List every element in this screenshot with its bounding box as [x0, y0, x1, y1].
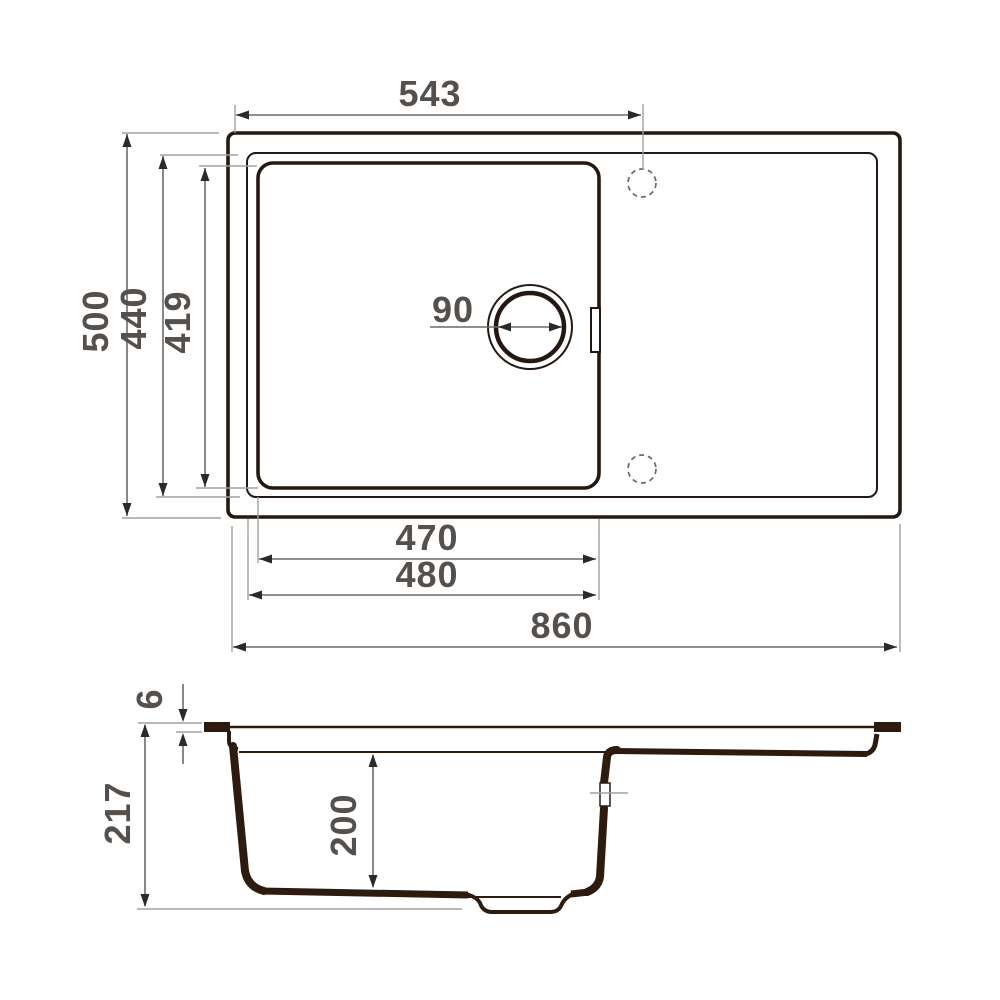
arrowhead-down [123, 503, 132, 516]
arrowhead-left [233, 643, 246, 652]
dim-label-860: 860 [530, 605, 593, 646]
arrowhead-left [236, 111, 249, 120]
arrowhead-up [141, 724, 150, 737]
overflow-slot-plan [591, 308, 600, 352]
section-bowl-bottom [262, 891, 468, 895]
arrowhead-down [141, 894, 150, 907]
arrowhead-right [628, 111, 641, 120]
dim-label-470: 470 [395, 517, 458, 558]
faucet-hole-top [628, 169, 656, 197]
section-overflow-hole [600, 783, 610, 806]
technical-drawing-canvas: 543 500 440 419 90 [0, 0, 1000, 1000]
arrowhead-left [498, 323, 511, 332]
section-bowl-wall-right-upper [604, 750, 617, 783]
dim-rim-thickness: 6 [129, 684, 202, 764]
sink-dimensions-diagram: 543 500 440 419 90 [0, 0, 1000, 1000]
arrowhead-right [884, 643, 897, 652]
top-view [228, 133, 900, 517]
dim-overall-width: 860 [232, 524, 900, 652]
dim-label-6: 6 [129, 688, 170, 709]
section-right-rim-edge [866, 734, 877, 754]
dim-label-90: 90 [432, 289, 474, 330]
bowl-outline [258, 163, 599, 488]
arrowhead-right [583, 555, 596, 564]
dim-label-440: 440 [113, 286, 154, 349]
arrowhead-right [549, 323, 562, 332]
section-view [204, 727, 901, 912]
arrowhead-up [201, 168, 210, 181]
dim-label-200: 200 [323, 793, 364, 856]
arrowhead-right [583, 591, 596, 600]
dim-label-480: 480 [395, 554, 458, 595]
arrowhead-up [179, 733, 188, 746]
dim-label-419: 419 [157, 290, 198, 353]
section-bowl-wall-left [233, 746, 264, 891]
arrowhead-down [179, 709, 188, 722]
arrowhead-down [201, 474, 210, 487]
dim-label-217: 217 [97, 781, 138, 844]
dim-bowl-length: 419 [157, 166, 258, 488]
faucet-hole-bottom [628, 455, 656, 483]
arrowhead-down [369, 875, 378, 888]
dim-top-width: 543 [235, 73, 643, 170]
dim-label-543: 543 [398, 73, 461, 114]
arrowhead-left [259, 555, 272, 564]
section-bowl-wall-right-lower [587, 808, 604, 892]
arrowhead-up [369, 754, 378, 767]
dim-bowl-depth: 200 [323, 754, 378, 888]
arrowhead-up [123, 134, 132, 147]
arrowhead-up [159, 156, 168, 169]
dim-label-500: 500 [75, 289, 116, 352]
section-drainboard-surface [613, 751, 867, 754]
arrowhead-left [249, 591, 262, 600]
arrowhead-down [159, 483, 168, 496]
